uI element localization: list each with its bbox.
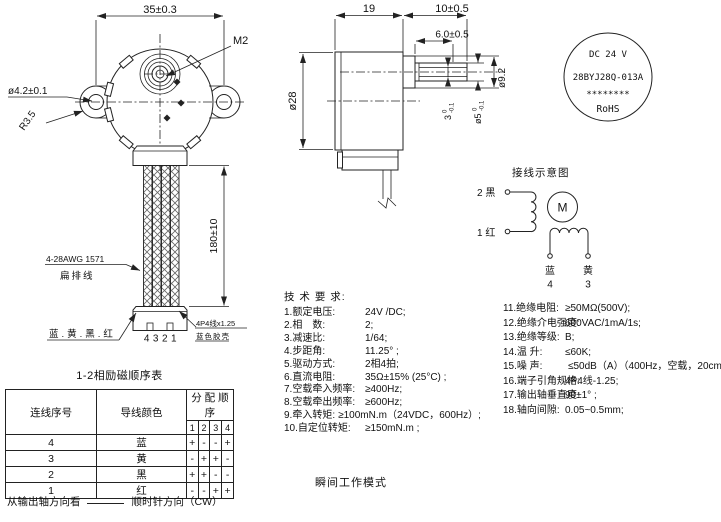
step-sign: + <box>186 435 198 451</box>
step-sign: - <box>222 451 234 467</box>
tech-item: 3.减速比:1/64; <box>284 333 502 346</box>
step-sign: + <box>186 467 198 483</box>
tech-item: 7.空载牵入频率:≥400Hz; <box>284 384 502 397</box>
ear-radius-label: R3.5 <box>17 109 38 133</box>
tech-item-value: ≥50MΩ(500V); <box>565 302 630 317</box>
tech-item-label: 15.噪 声: <box>503 360 565 375</box>
excitation-sequence-block: 1-2相励磁顺序表 连线序号 导线颜色 分 配 顺 序 1 2 3 4 4 蓝 … <box>5 367 234 499</box>
tech-item-value: 4P4线-1.25; <box>565 375 618 390</box>
wire-exit-housing <box>133 146 187 166</box>
tech-item: 16.端子引角规格:4P4线-1.25; <box>503 375 721 390</box>
engineering-drawing-page: 35±0.3 <box>0 0 721 522</box>
front-view: 35±0.3 <box>8 4 248 345</box>
tech-item: 9.牵入转矩:≥100mN.m（24VDC，600Hz）; <box>284 410 502 423</box>
yellow-wire-label: 黄 <box>583 264 593 277</box>
terminal-3-dot <box>586 254 591 259</box>
blue-wire-number: 4 <box>547 280 553 291</box>
step-header: 3 <box>210 421 222 435</box>
col-header-order: 分 配 顺 序 <box>186 390 233 421</box>
tech-item: 4.步距角:11.25° ; <box>284 346 502 359</box>
step-header: 2 <box>198 421 210 435</box>
boss-dia-dim: ø9.2 <box>497 68 508 88</box>
terminal-1-dot <box>505 229 510 234</box>
ribbon-cable <box>144 166 180 307</box>
connector-side <box>342 150 398 170</box>
motor-symbol: M <box>558 201 568 215</box>
depth-dim: 19 <box>363 3 375 15</box>
step-sign: - <box>210 467 222 483</box>
tech-item-value: 24V /DC; <box>365 307 406 320</box>
nameplate: DC 24 V 28BYJ28Q-013A ******** RoHS <box>564 33 652 121</box>
step-sign: + <box>198 451 210 467</box>
tech-item: 12.绝缘介电强度:600VAC/1mA/1s; <box>503 317 721 332</box>
svg-text:0: 0 <box>443 109 449 113</box>
svg-text:0: 0 <box>473 107 479 111</box>
tech-item: 18.轴向间隙:0.05~0.5mm; <box>503 404 721 419</box>
svg-text:3: 3 <box>443 115 453 120</box>
terminal-4-dot <box>548 254 553 259</box>
tech-item-value: ≥150mN.m ; <box>365 423 419 436</box>
svg-text:ø5: ø5 <box>473 113 483 124</box>
tech-item-value: ≥400Hz; <box>365 384 402 397</box>
yellow-wire-number: 3 <box>585 280 591 291</box>
col-header-wire-color: 导线颜色 <box>97 390 187 435</box>
tech-item-label: 3.减速比: <box>284 333 365 346</box>
front-width-dim: 35±0.3 <box>143 4 177 16</box>
note-divider-line <box>87 503 124 504</box>
wire-color: 黑 <box>97 467 187 483</box>
tech-item-label: 16.端子引角规格: <box>503 375 565 390</box>
tech-item-value: 0.05~0.5mm; <box>565 404 624 419</box>
tech-item-label: 11.绝缘电阻: <box>503 302 565 317</box>
step-sign: - <box>186 451 198 467</box>
nameplate-rohs: RoHS <box>597 104 620 115</box>
coil-b <box>550 228 588 233</box>
wire-color: 黄 <box>97 451 187 467</box>
svg-text:-0.1: -0.1 <box>480 100 486 111</box>
step-sign: + <box>210 451 222 467</box>
wire-break-symbol <box>378 198 396 208</box>
step-header: 4 <box>222 421 234 435</box>
terminal-1-label: 1 红 <box>477 226 495 239</box>
tech-requirements-left: 技 术 要 求: 1.额定电压:24V /DC; 2.相 数:2; 3.减速比:… <box>284 289 502 436</box>
blue-wire-label: 蓝 <box>545 265 555 277</box>
terminal-2-dot <box>505 190 510 195</box>
flat-width-dim: 3 0 -0.1 <box>443 102 456 120</box>
step-sign: + <box>222 483 234 499</box>
tech-requirements-right: 11.绝缘电阻:≥50MΩ(500V); 12.绝缘介电强度:600VAC/1m… <box>503 302 721 418</box>
nameplate-stars: ******** <box>586 90 629 100</box>
tech-item-label: 18.轴向间隙: <box>503 404 565 419</box>
tech-item-label: 2.相 数: <box>284 320 365 333</box>
shaft-dia-dim: ø5 0 -0.1 <box>473 100 486 124</box>
nameplate-model: 28BYJ28Q-013A <box>573 73 644 83</box>
tech-item: 14.温 升:≤60K; <box>503 346 721 361</box>
tech-item: 13.绝缘等级:B; <box>503 331 721 346</box>
lead-length-dim: 180±10 <box>208 218 220 253</box>
tech-item-label: 9.牵入转矩: <box>284 410 335 423</box>
wire-number: 3 <box>6 451 97 467</box>
body-dia-dim: ø28 <box>287 92 299 111</box>
thread-label: M2 <box>233 35 248 47</box>
tech-item-value: 600VAC/1mA/1s; <box>565 317 641 332</box>
ear-hole-dia-label: ø4.2±0.1 <box>8 86 48 97</box>
table-row: 3 黄 - + + - <box>6 451 234 467</box>
tech-item-label: 7.空载牵入频率: <box>284 384 365 397</box>
tech-item-label: 14.温 升: <box>503 346 565 361</box>
tech-item-value: ≥600Hz; <box>365 397 402 410</box>
tech-item-value: ≤60K; <box>565 346 591 361</box>
step-sign: - <box>198 435 210 451</box>
tech-item-label: 5.驱动方式: <box>284 359 365 372</box>
tech-item-value: 11.25° ; <box>365 346 399 359</box>
step-sign: - <box>222 467 234 483</box>
nameplate-voltage: DC 24 V <box>589 50 628 60</box>
tech-item-label: 8.空载牵出频率: <box>284 397 365 410</box>
tech-item-label: 4.步距角: <box>284 346 365 359</box>
wire-number: 4 <box>6 435 97 451</box>
side-view: 19 10±0.5 6.0±0.5 ø28 3 0 -0.1 <box>287 3 508 208</box>
connector-shell-label: 蓝色胶壳 <box>196 331 230 341</box>
terminal-2-label: 2 黑 <box>477 187 495 199</box>
coil-a <box>531 192 536 232</box>
tech-item: 6.直流电阻:35Ω±15% (25°C) ; <box>284 372 502 385</box>
svg-text:-0.1: -0.1 <box>450 102 456 113</box>
tech-item-value: 90±1° ; <box>565 389 597 404</box>
tech-item-label: 12.绝缘介电强度: <box>503 317 565 332</box>
shaft-length-dim: 10±0.5 <box>435 3 469 15</box>
table-row: 2 黑 + + - - <box>6 467 234 483</box>
rotation-direction-note: 从输出轴方向看 顺时针方向（CW） <box>7 494 223 509</box>
wire-color: 蓝 <box>97 435 187 451</box>
step-sign: - <box>210 435 222 451</box>
wiring-diagram: 接线示意图 2 黑 1 红 M 蓝 4 黄 3 <box>477 166 593 291</box>
tech-item-value: ≥100mN.m（24VDC，600Hz）; <box>338 410 481 423</box>
connector-spec-label: 4P4线x1.25 <box>196 318 235 328</box>
tech-item-value: B; <box>565 331 574 346</box>
connector-front <box>133 307 187 331</box>
excitation-table: 连线序号 导线颜色 分 配 顺 序 1 2 3 4 4 蓝 + - - + 3 … <box>5 389 234 499</box>
tech-item-value: 1/64; <box>365 333 387 346</box>
view-direction-text: 从输出轴方向看 <box>7 494 81 509</box>
flat-length-dim: 6.0±0.5 <box>435 30 469 41</box>
col-header-wire-no: 连线序号 <box>6 390 97 435</box>
tech-item: 1.额定电压:24V /DC; <box>284 307 502 320</box>
tech-item: 2.相 数:2; <box>284 320 502 333</box>
tech-item: 11.绝缘电阻:≥50MΩ(500V); <box>503 302 721 317</box>
tech-item-label: 1.额定电压: <box>284 307 365 320</box>
tech-item-value: 2相4拍; <box>365 359 399 372</box>
wire-number: 2 <box>6 467 97 483</box>
tech-item-value: ≤50dB（A）（400Hz，空载，20cm）; <box>568 360 721 375</box>
tech-item-value: 35Ω±15% (25°C) ; <box>365 372 446 385</box>
step-sign: + <box>198 467 210 483</box>
wire-type-label: 扁排线 <box>60 270 95 282</box>
step-header: 1 <box>186 421 198 435</box>
tech-heading: 技 术 要 求: <box>284 289 502 304</box>
wire-spec-label: 4-28AWG 1571 <box>46 254 105 264</box>
wire-colors-label: 蓝.黄.黑.红 <box>49 328 116 340</box>
tech-item-label: 10.自定位转矩: <box>284 423 365 436</box>
tech-item: 15.噪 声:≤50dB（A）（400Hz，空载，20cm）; <box>503 360 721 375</box>
step-sign: + <box>222 435 234 451</box>
tech-item-value: 2; <box>365 320 373 333</box>
wiring-title: 接线示意图 <box>512 166 570 179</box>
rotation-direction-text: 顺时针方向（CW） <box>132 494 223 509</box>
tech-item-label: 6.直流电阻: <box>284 372 365 385</box>
tech-item: 17.输出轴垂直度:90±1° ; <box>503 389 721 404</box>
tech-item: 10.自定位转矩:≥150mN.m ; <box>284 423 502 436</box>
tech-item: 8.空载牵出频率:≥600Hz; <box>284 397 502 410</box>
work-mode-caption: 瞬间工作模式 <box>315 474 387 490</box>
excitation-table-title: 1-2相励磁顺序表 <box>5 367 234 383</box>
tech-item: 5.驱动方式:2相4拍; <box>284 359 502 372</box>
tech-item-label: 13.绝缘等级: <box>503 331 565 346</box>
tech-item-label: 17.输出轴垂直度: <box>503 389 565 404</box>
table-row: 4 蓝 + - - + <box>6 435 234 451</box>
pin-numbers: 4321 <box>144 334 180 345</box>
